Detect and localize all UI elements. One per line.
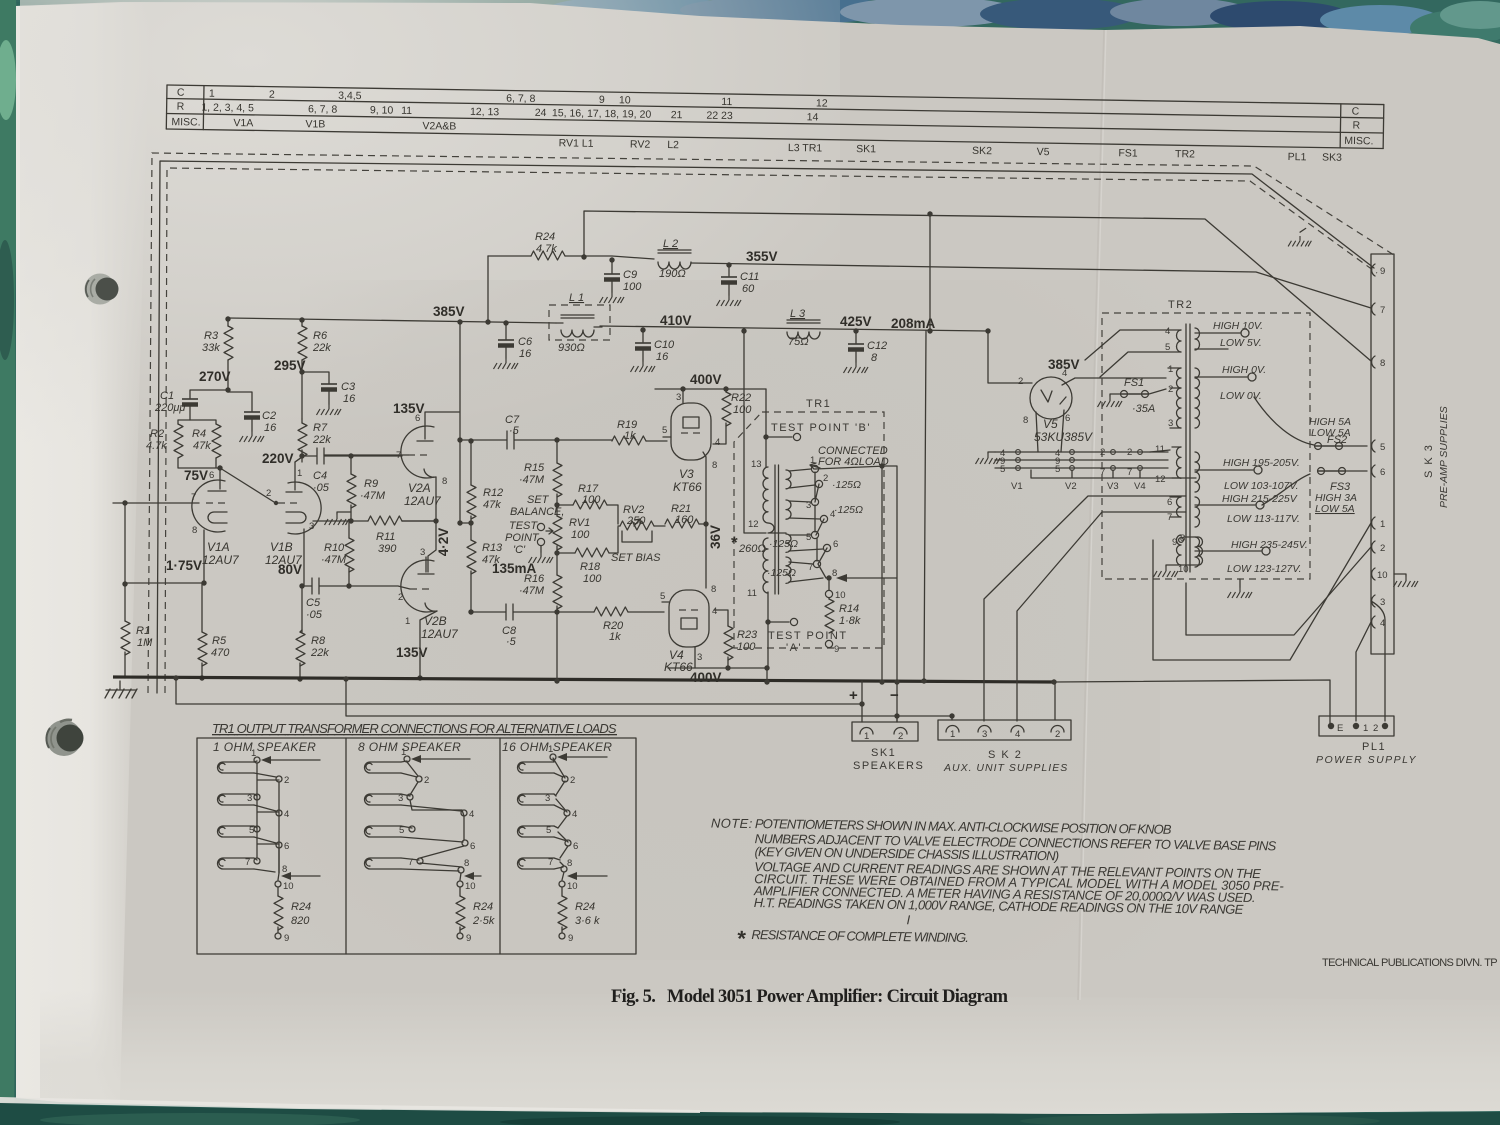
svg-text:6: 6	[284, 841, 289, 852]
svg-text:R24: R24	[535, 231, 555, 243]
svg-text:930Ω: 930Ω	[558, 342, 585, 354]
svg-text:1·8k: 1·8k	[839, 615, 861, 627]
svg-text:PRE-AMP SUPPLIES: PRE-AMP SUPPLIES	[1438, 406, 1450, 508]
svg-text:SK3: SK3	[1322, 152, 1342, 164]
svg-text:400V: 400V	[690, 372, 722, 387]
svg-text:10: 10	[835, 590, 846, 601]
svg-text:SPEAKERS: SPEAKERS	[853, 760, 924, 772]
svg-text:9: 9	[1172, 537, 1177, 548]
svg-text:KT66: KT66	[673, 480, 702, 494]
svg-text:R: R	[177, 101, 185, 113]
svg-text:15, 16, 17, 18, 19, 20: 15, 16, 17, 18, 19, 20	[552, 107, 652, 121]
svg-text:10: 10	[567, 881, 578, 892]
svg-text:·35A: ·35A	[1132, 403, 1155, 415]
svg-text:FS1: FS1	[1124, 377, 1144, 389]
svg-text:−: −	[890, 687, 899, 704]
svg-text:R3: R3	[204, 330, 219, 342]
svg-text:8: 8	[567, 858, 572, 869]
svg-text:4: 4	[715, 437, 720, 448]
svg-text:135V: 135V	[393, 401, 425, 416]
svg-text:9: 9	[466, 933, 471, 944]
svg-text:75V: 75V	[184, 468, 208, 483]
svg-text:33k: 33k	[202, 342, 220, 354]
svg-text:R18: R18	[580, 561, 601, 573]
svg-text:'A': 'A'	[786, 642, 802, 654]
svg-text:TR1: TR1	[806, 398, 831, 410]
svg-text:SET: SET	[527, 494, 550, 506]
svg-text:9: 9	[284, 933, 289, 944]
svg-text:100: 100	[571, 529, 590, 541]
svg-text:*: *	[737, 926, 746, 951]
svg-text:355V: 355V	[746, 249, 778, 264]
svg-text:270V: 270V	[199, 369, 231, 384]
svg-text:7: 7	[1100, 467, 1105, 478]
svg-text:1: 1	[401, 747, 406, 758]
svg-text:3: 3	[806, 500, 811, 511]
svg-text:10: 10	[1178, 564, 1189, 575]
svg-text:5: 5	[1000, 464, 1005, 475]
svg-text:5: 5	[546, 825, 551, 836]
svg-text:E: E	[1337, 723, 1343, 734]
svg-text:4.7k: 4.7k	[536, 243, 557, 255]
svg-text:C: C	[1352, 106, 1360, 118]
svg-text:TR1 OUTPUT TRANSFORMER CONN: TR1 OUTPUT TRANSFORMER CONNECTIONS FOR A…	[212, 721, 617, 736]
svg-text:21: 21	[671, 109, 683, 121]
svg-text:3: 3	[309, 521, 314, 532]
svg-text:1: 1	[1168, 364, 1173, 375]
svg-text:TEST: TEST	[509, 520, 538, 532]
svg-text:220μμ: 220μμ	[154, 402, 185, 414]
svg-text:I: I	[907, 912, 911, 927]
svg-text:1: 1	[405, 616, 410, 627]
svg-text:7: 7	[191, 492, 196, 503]
svg-text:SK1: SK1	[856, 143, 876, 155]
svg-text:V3: V3	[1107, 481, 1119, 492]
svg-text:2: 2	[269, 89, 275, 101]
svg-text:8: 8	[832, 568, 837, 579]
svg-text:R7: R7	[313, 422, 328, 434]
svg-text:80V: 80V	[278, 562, 302, 577]
svg-text:2: 2	[1380, 543, 1385, 554]
svg-text:160: 160	[675, 514, 694, 526]
svg-text:2: 2	[1127, 447, 1132, 458]
svg-text:L 3: L 3	[790, 308, 806, 320]
svg-text:C11: C11	[740, 271, 759, 283]
svg-text:385V: 385V	[1048, 357, 1080, 372]
svg-text:C9: C9	[623, 269, 637, 281]
svg-text:3: 3	[676, 392, 681, 403]
svg-text:3: 3	[545, 793, 550, 804]
svg-text:5: 5	[660, 591, 665, 602]
svg-text:7: 7	[1127, 467, 1132, 478]
svg-text:400V: 400V	[690, 670, 722, 685]
svg-text:8 OHM SPEAKER: 8 OHM SPEAKER	[358, 740, 461, 754]
svg-text:3: 3	[1168, 418, 1173, 429]
svg-text:4·2V: 4·2V	[436, 528, 451, 557]
svg-text:100: 100	[733, 404, 752, 416]
svg-text:47k: 47k	[483, 499, 501, 511]
svg-text:22k: 22k	[310, 647, 329, 659]
svg-text:1k: 1k	[609, 631, 621, 643]
svg-text:TECHNICAL PUBLICATIONS DIVN. T: TECHNICAL PUBLICATIONS DIVN. TP	[1322, 957, 1498, 969]
svg-text:390: 390	[378, 543, 397, 555]
svg-text:R10: R10	[324, 542, 345, 554]
svg-text:5: 5	[1380, 442, 1385, 453]
svg-text:820: 820	[291, 915, 310, 927]
svg-text:2: 2	[1168, 384, 1173, 395]
svg-text:V5: V5	[1037, 146, 1050, 158]
svg-text:6: 6	[470, 841, 475, 852]
svg-text:4: 4	[712, 606, 717, 617]
svg-text:7: 7	[245, 857, 250, 868]
svg-text:1: 1	[1363, 723, 1368, 734]
svg-text:SET BIAS: SET BIAS	[611, 552, 661, 564]
svg-text:R14: R14	[839, 603, 859, 615]
svg-text:PL1: PL1	[1288, 151, 1307, 163]
svg-text:22k: 22k	[312, 342, 331, 354]
svg-text:8: 8	[711, 584, 716, 595]
svg-text:12: 12	[816, 97, 828, 109]
svg-text:2: 2	[266, 488, 271, 499]
svg-text:V1: V1	[1011, 481, 1023, 492]
svg-text:1k: 1k	[624, 430, 636, 442]
svg-text:·47M: ·47M	[321, 554, 347, 566]
svg-text:8: 8	[442, 476, 447, 487]
svg-text:6: 6	[1380, 467, 1385, 478]
svg-text:R6: R6	[313, 330, 328, 342]
svg-text:R12: R12	[483, 487, 503, 499]
svg-text:'C': 'C'	[513, 544, 526, 556]
svg-text:3: 3	[697, 652, 702, 663]
svg-text:6, 7, 8: 6, 7, 8	[308, 103, 338, 115]
svg-text:11: 11	[721, 96, 732, 108]
svg-text:3: 3	[247, 793, 252, 804]
svg-text:R24: R24	[291, 901, 311, 913]
svg-text:11: 11	[1155, 444, 1165, 455]
svg-text:9: 9	[1380, 266, 1385, 277]
svg-text:100: 100	[623, 281, 642, 293]
svg-text:8: 8	[1380, 358, 1385, 369]
svg-text:2: 2	[1100, 447, 1105, 458]
svg-text:V5: V5	[1043, 417, 1058, 431]
svg-text:R8: R8	[311, 635, 326, 647]
svg-text:5: 5	[1165, 342, 1170, 353]
svg-text:3: 3	[982, 729, 987, 740]
svg-text:HIGH 215-225V: HIGH 215-225V	[1222, 493, 1298, 505]
svg-text:1 OHM SPEAKER: 1 OHM SPEAKER	[213, 740, 316, 754]
svg-text:PL1: PL1	[1362, 741, 1386, 753]
svg-text:HIGH 195-205V.: HIGH 195-205V.	[1223, 457, 1300, 469]
svg-text:2: 2	[284, 775, 289, 786]
svg-text:4: 4	[469, 809, 474, 820]
svg-text:11: 11	[747, 588, 757, 599]
svg-text:3,4,5: 3,4,5	[338, 90, 362, 102]
svg-text:MISC.: MISC.	[171, 116, 200, 128]
svg-text:3: 3	[1380, 597, 1385, 608]
svg-text:TR2: TR2	[1168, 299, 1193, 311]
svg-text:RV1: RV1	[569, 517, 590, 529]
svg-text:V1A: V1A	[233, 117, 253, 129]
svg-text:C3: C3	[341, 381, 356, 393]
svg-text:BALANCE,: BALANCE,	[510, 506, 564, 518]
svg-text:Fig. 5. Model 3051 Power Amp: Fig. 5. Model 3051 Power Amplifier: Circ…	[611, 987, 1009, 1007]
svg-text:C12: C12	[867, 340, 887, 352]
svg-text:100: 100	[583, 573, 602, 585]
svg-text:HIGH 235-245V.: HIGH 235-245V.	[1231, 539, 1308, 551]
svg-text:135V: 135V	[396, 645, 428, 660]
svg-text:8: 8	[712, 460, 717, 471]
svg-text:R4: R4	[192, 428, 206, 440]
svg-text:7: 7	[548, 857, 553, 868]
svg-text:NOTE:: NOTE:	[711, 815, 753, 831]
svg-text:260Ω: 260Ω	[738, 543, 766, 555]
svg-text:410V: 410V	[660, 313, 692, 328]
svg-text:R9: R9	[364, 478, 378, 490]
svg-text:S K 3: S K 3	[1423, 444, 1435, 478]
svg-text:SK1: SK1	[871, 747, 896, 759]
svg-text:24: 24	[535, 107, 547, 119]
svg-text:V1B: V1B	[270, 540, 293, 554]
svg-text:·5: ·5	[509, 425, 520, 437]
svg-text:9, 10: 9, 10	[370, 104, 394, 116]
svg-text:1: 1	[251, 748, 256, 759]
svg-text:16 OHM SPEAKER: 16 OHM SPEAKER	[502, 740, 612, 754]
svg-text:L 2: L 2	[663, 238, 678, 250]
svg-text:7: 7	[1380, 305, 1385, 316]
svg-text:V1A: V1A	[207, 540, 230, 554]
svg-text:3: 3	[398, 793, 403, 804]
svg-text:22k: 22k	[312, 434, 331, 446]
svg-text:·47M: ·47M	[519, 474, 545, 486]
svg-text:TEST POINT 'B': TEST POINT 'B'	[771, 422, 871, 434]
svg-text:·05: ·05	[313, 482, 330, 494]
svg-text:V2A&B: V2A&B	[422, 120, 456, 133]
svg-text:1M: 1M	[137, 637, 153, 649]
svg-text:L2: L2	[667, 139, 679, 151]
svg-text:1: 1	[950, 729, 955, 740]
svg-text:R11: R11	[376, 531, 395, 543]
svg-text:LOW 123-127V.: LOW 123-127V.	[1227, 563, 1302, 575]
svg-text:9: 9	[568, 933, 573, 944]
svg-text:RESISTANCE OF COMPLETE WINDING: RESISTANCE OF COMPLETE WINDING.	[751, 927, 969, 945]
svg-text:10: 10	[283, 881, 294, 892]
svg-text:5: 5	[249, 825, 254, 836]
svg-text:12: 12	[1155, 474, 1166, 485]
svg-text:+: +	[849, 687, 858, 704]
svg-text:POINT: POINT	[505, 532, 540, 544]
svg-text:·47M: ·47M	[519, 585, 545, 597]
svg-text:LOW 113-117V.: LOW 113-117V.	[1227, 513, 1300, 525]
svg-text:C5: C5	[306, 597, 321, 609]
svg-text:385V: 385V	[1064, 430, 1093, 444]
svg-text:12: 12	[748, 519, 759, 530]
svg-text:2: 2	[570, 775, 575, 786]
svg-text:250: 250	[626, 515, 646, 527]
svg-text:6: 6	[1167, 497, 1172, 508]
svg-text:AUX. UNIT SUPPLIES: AUX. UNIT SUPPLIES	[943, 762, 1068, 774]
svg-text:6: 6	[833, 539, 838, 550]
svg-text:14: 14	[807, 111, 819, 123]
svg-text:3·6 k: 3·6 k	[575, 915, 600, 927]
svg-text:16: 16	[656, 351, 669, 363]
svg-text:135mA: 135mA	[492, 561, 537, 576]
svg-text:7: 7	[1167, 512, 1172, 523]
svg-text:C4: C4	[313, 470, 327, 482]
svg-text:16: 16	[264, 422, 277, 434]
svg-text:10: 10	[465, 881, 476, 892]
svg-text:6: 6	[209, 470, 214, 481]
svg-text:L 1: L 1	[569, 292, 584, 304]
svg-text:7: 7	[808, 562, 813, 573]
svg-text:RV2: RV2	[630, 138, 651, 150]
svg-text:2: 2	[1373, 723, 1378, 734]
svg-text:4: 4	[572, 809, 577, 820]
svg-text:190Ω: 190Ω	[659, 268, 686, 280]
svg-text:FS2: FS2	[1327, 434, 1347, 446]
svg-text:HIGH 0V.: HIGH 0V.	[1222, 364, 1266, 376]
svg-text:R22: R22	[731, 392, 751, 404]
svg-text:11: 11	[401, 105, 412, 117]
svg-text:FS1: FS1	[1118, 147, 1138, 159]
svg-text:1: 1	[864, 731, 869, 742]
svg-text:36V: 36V	[708, 525, 723, 549]
svg-text:1: 1	[548, 744, 553, 755]
svg-text:470: 470	[211, 647, 230, 659]
svg-text:POWER SUPPLY: POWER SUPPLY	[1316, 754, 1417, 766]
svg-text:12AU7: 12AU7	[202, 553, 240, 567]
svg-text:9: 9	[599, 94, 605, 106]
svg-text:2: 2	[424, 775, 429, 786]
svg-text:12, 13: 12, 13	[470, 106, 500, 118]
svg-text:MISC.: MISC.	[1344, 135, 1373, 147]
svg-text:2: 2	[898, 731, 903, 742]
svg-text:8: 8	[871, 352, 878, 364]
svg-text:R2: R2	[150, 428, 164, 440]
svg-text:SK2: SK2	[972, 145, 992, 157]
svg-text:L3 TR1: L3 TR1	[788, 142, 823, 155]
svg-text:S K 2: S K 2	[988, 749, 1022, 761]
svg-text:8: 8	[282, 864, 287, 875]
svg-text:·125Ω: ·125Ω	[769, 538, 798, 550]
svg-text:6: 6	[1065, 413, 1070, 424]
svg-text:C1: C1	[160, 390, 174, 402]
svg-text:C6: C6	[518, 336, 533, 348]
svg-text:·5: ·5	[506, 636, 517, 648]
svg-text:53KU: 53KU	[1034, 430, 1064, 444]
svg-text:2: 2	[1018, 376, 1023, 387]
svg-text:HIGH 10V.: HIGH 10V.	[1213, 320, 1263, 332]
svg-text:1: 1	[297, 468, 302, 479]
svg-text:1: 1	[1380, 519, 1385, 530]
svg-text:2: 2	[823, 473, 828, 484]
svg-text:22 23: 22 23	[706, 110, 733, 122]
svg-text:2: 2	[398, 592, 403, 603]
svg-text:8: 8	[192, 525, 197, 536]
svg-text:V2: V2	[1065, 481, 1077, 492]
svg-text:·125Ω: ·125Ω	[832, 479, 861, 491]
svg-text:R: R	[1352, 120, 1360, 132]
svg-text:12AU7: 12AU7	[404, 494, 442, 508]
svg-text:16: 16	[519, 348, 532, 360]
svg-text:3: 3	[420, 547, 425, 558]
svg-text:425V: 425V	[840, 314, 872, 329]
svg-text:V2A: V2A	[408, 481, 431, 495]
svg-text:R23: R23	[737, 629, 758, 641]
svg-text:RV1 L1: RV1 L1	[559, 137, 594, 150]
svg-text:4: 4	[284, 809, 289, 820]
svg-text:R24: R24	[473, 901, 493, 913]
svg-text:R13: R13	[482, 542, 503, 554]
svg-text:1, 2, 3, 4, 5: 1, 2, 3, 4, 5	[201, 102, 254, 115]
svg-text:R5: R5	[212, 635, 227, 647]
svg-text:C2: C2	[262, 410, 276, 422]
svg-text:R15: R15	[524, 462, 545, 474]
svg-text:1: 1	[209, 88, 215, 100]
svg-text:R24: R24	[575, 901, 595, 913]
svg-text:V3: V3	[679, 467, 694, 481]
svg-text:1·75V: 1·75V	[166, 558, 202, 573]
svg-text:100: 100	[582, 494, 601, 506]
svg-text:R1: R1	[136, 625, 150, 637]
svg-text:2·5k: 2·5k	[472, 915, 495, 927]
svg-text:·125Ω: ·125Ω	[834, 504, 863, 516]
svg-text:4.7k: 4.7k	[146, 440, 167, 452]
svg-text:KT66: KT66	[664, 660, 693, 674]
svg-text:·47M: ·47M	[360, 490, 386, 502]
svg-text:60: 60	[742, 283, 755, 295]
svg-text:C: C	[177, 87, 185, 99]
svg-text:5: 5	[399, 825, 404, 836]
svg-text:5: 5	[1055, 464, 1060, 475]
svg-text:385V: 385V	[433, 304, 465, 319]
svg-text:12AU7: 12AU7	[421, 627, 459, 641]
svg-text:LOW 103-107V.: LOW 103-107V.	[1224, 480, 1299, 492]
svg-text:8: 8	[1180, 533, 1185, 544]
svg-text:6: 6	[573, 841, 578, 852]
svg-text:5: 5	[806, 532, 811, 543]
svg-text:7: 7	[408, 857, 413, 868]
svg-text:2: 2	[1055, 729, 1060, 740]
svg-text:4: 4	[1015, 729, 1020, 740]
svg-text:13: 13	[751, 459, 762, 470]
svg-text:8: 8	[1023, 415, 1028, 426]
svg-text:9: 9	[834, 644, 839, 655]
svg-text:V1B: V1B	[305, 118, 325, 130]
svg-text:220V: 220V	[262, 451, 294, 466]
svg-text:V4: V4	[1134, 481, 1146, 492]
svg-text:8: 8	[464, 858, 469, 869]
svg-text:100: 100	[737, 641, 756, 653]
svg-text:·05: ·05	[306, 609, 323, 621]
svg-text:10: 10	[1377, 570, 1388, 581]
svg-text:6, 7, 8: 6, 7, 8	[506, 92, 536, 104]
svg-text:LOW 5V.: LOW 5V.	[1220, 337, 1262, 349]
svg-text:·125Ω: ·125Ω	[767, 567, 796, 579]
svg-text:TR2: TR2	[1175, 148, 1195, 160]
svg-text:LOW 5A: LOW 5A	[1315, 503, 1355, 515]
svg-text:4: 4	[1165, 326, 1170, 337]
svg-text:10: 10	[619, 94, 631, 106]
svg-text:C10: C10	[654, 339, 675, 351]
svg-text:16: 16	[343, 393, 356, 405]
svg-text:5: 5	[662, 425, 667, 436]
svg-text:75Ω: 75Ω	[788, 336, 809, 348]
svg-text:TEST POINT: TEST POINT	[768, 630, 848, 642]
svg-text:*: *	[731, 533, 738, 552]
svg-text:47k: 47k	[193, 440, 211, 452]
